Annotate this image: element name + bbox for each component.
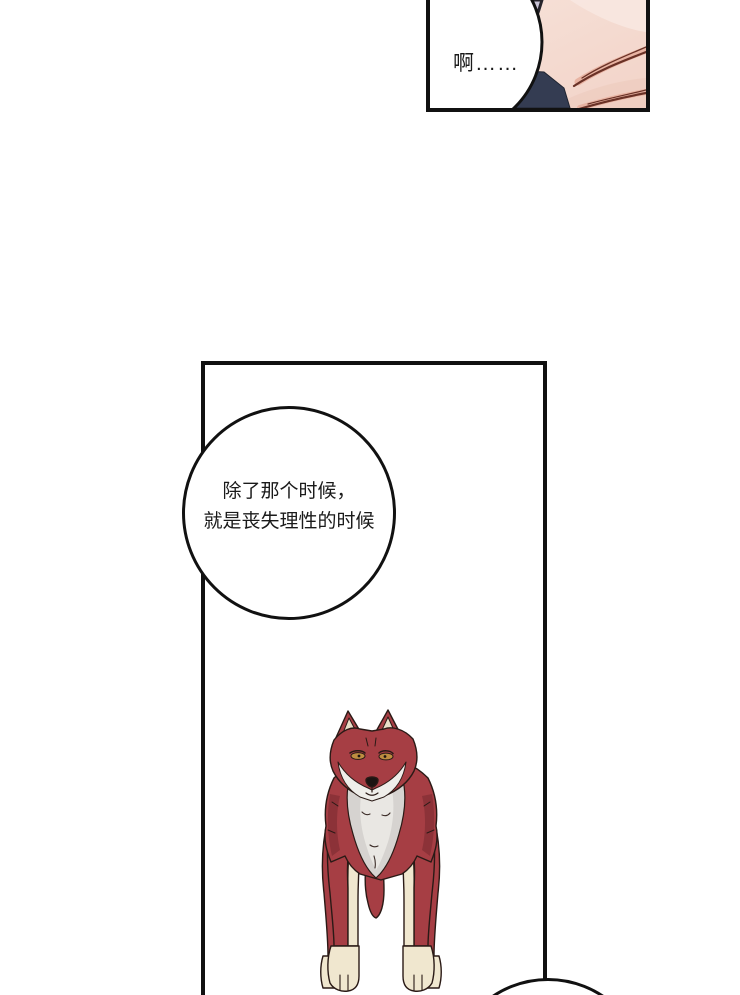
top-bubble-text: 啊……: [430, 47, 542, 77]
wolf-nose: [366, 777, 378, 787]
thought-bubble-line-2: 就是丧失理性的时候: [203, 507, 374, 537]
comic-page: 除了那个时候， 就是丧失理性的时候: [0, 0, 740, 995]
top-panel: 啊……: [426, 0, 650, 112]
thought-bubble-line-1: 除了那个时候，: [222, 477, 355, 507]
wolf-illustration: [318, 698, 444, 995]
thought-bubble: 除了那个时候， 就是丧失理性的时候: [182, 406, 396, 620]
